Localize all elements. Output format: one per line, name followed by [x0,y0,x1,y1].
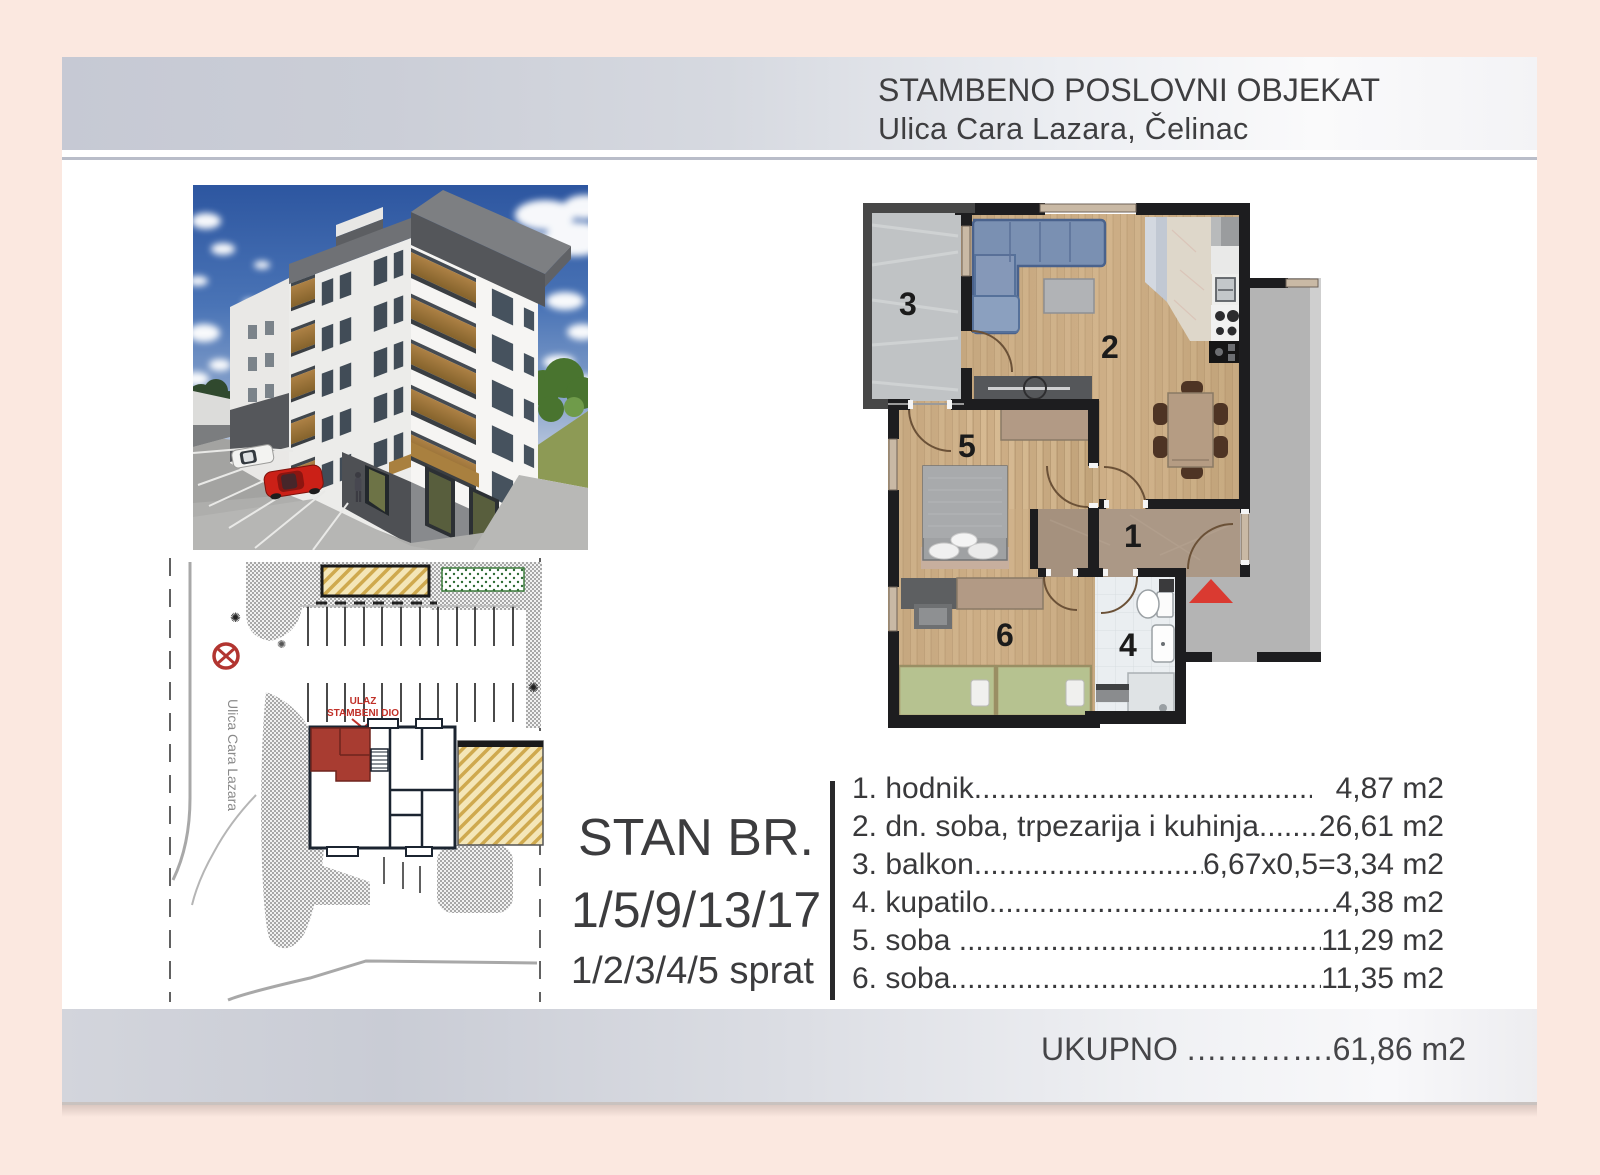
svg-text:2: 2 [1101,329,1119,365]
svg-text:1: 1 [1124,518,1142,554]
svg-text:STAMBENI DIO: STAMBENI DIO [327,708,399,719]
svg-text:5: 5 [958,428,976,464]
svg-text:4: 4 [1119,627,1137,663]
svg-text:6: 6 [996,617,1014,653]
svg-text:3: 3 [899,286,917,322]
svg-text:✺: ✺ [230,610,241,625]
svg-text:✺: ✺ [528,680,539,695]
svg-text:✺: ✺ [277,639,286,651]
svg-text:Ulica Cara Lazara: Ulica Cara Lazara [225,699,241,811]
svg-text:ULAZ: ULAZ [350,696,377,707]
